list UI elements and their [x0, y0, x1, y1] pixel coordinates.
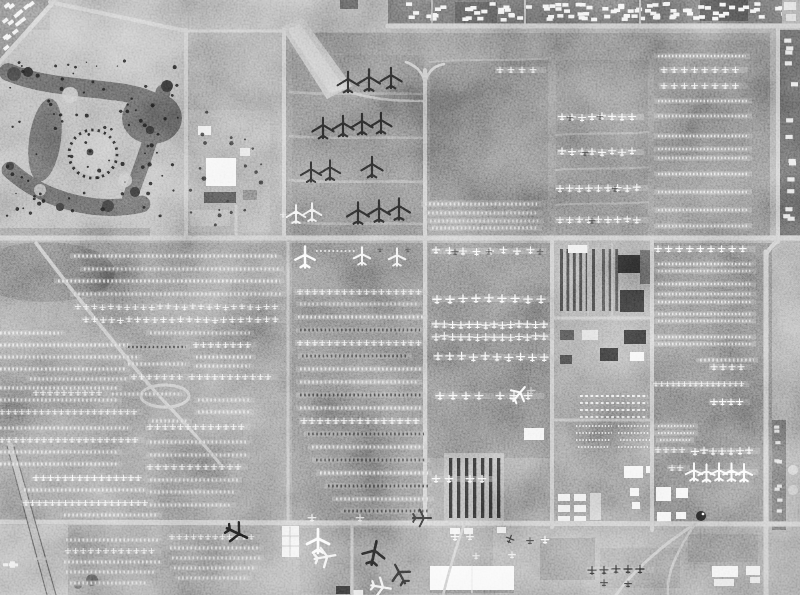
aerial-photo-boneyard: [0, 0, 800, 595]
satellite-image: [0, 0, 800, 595]
